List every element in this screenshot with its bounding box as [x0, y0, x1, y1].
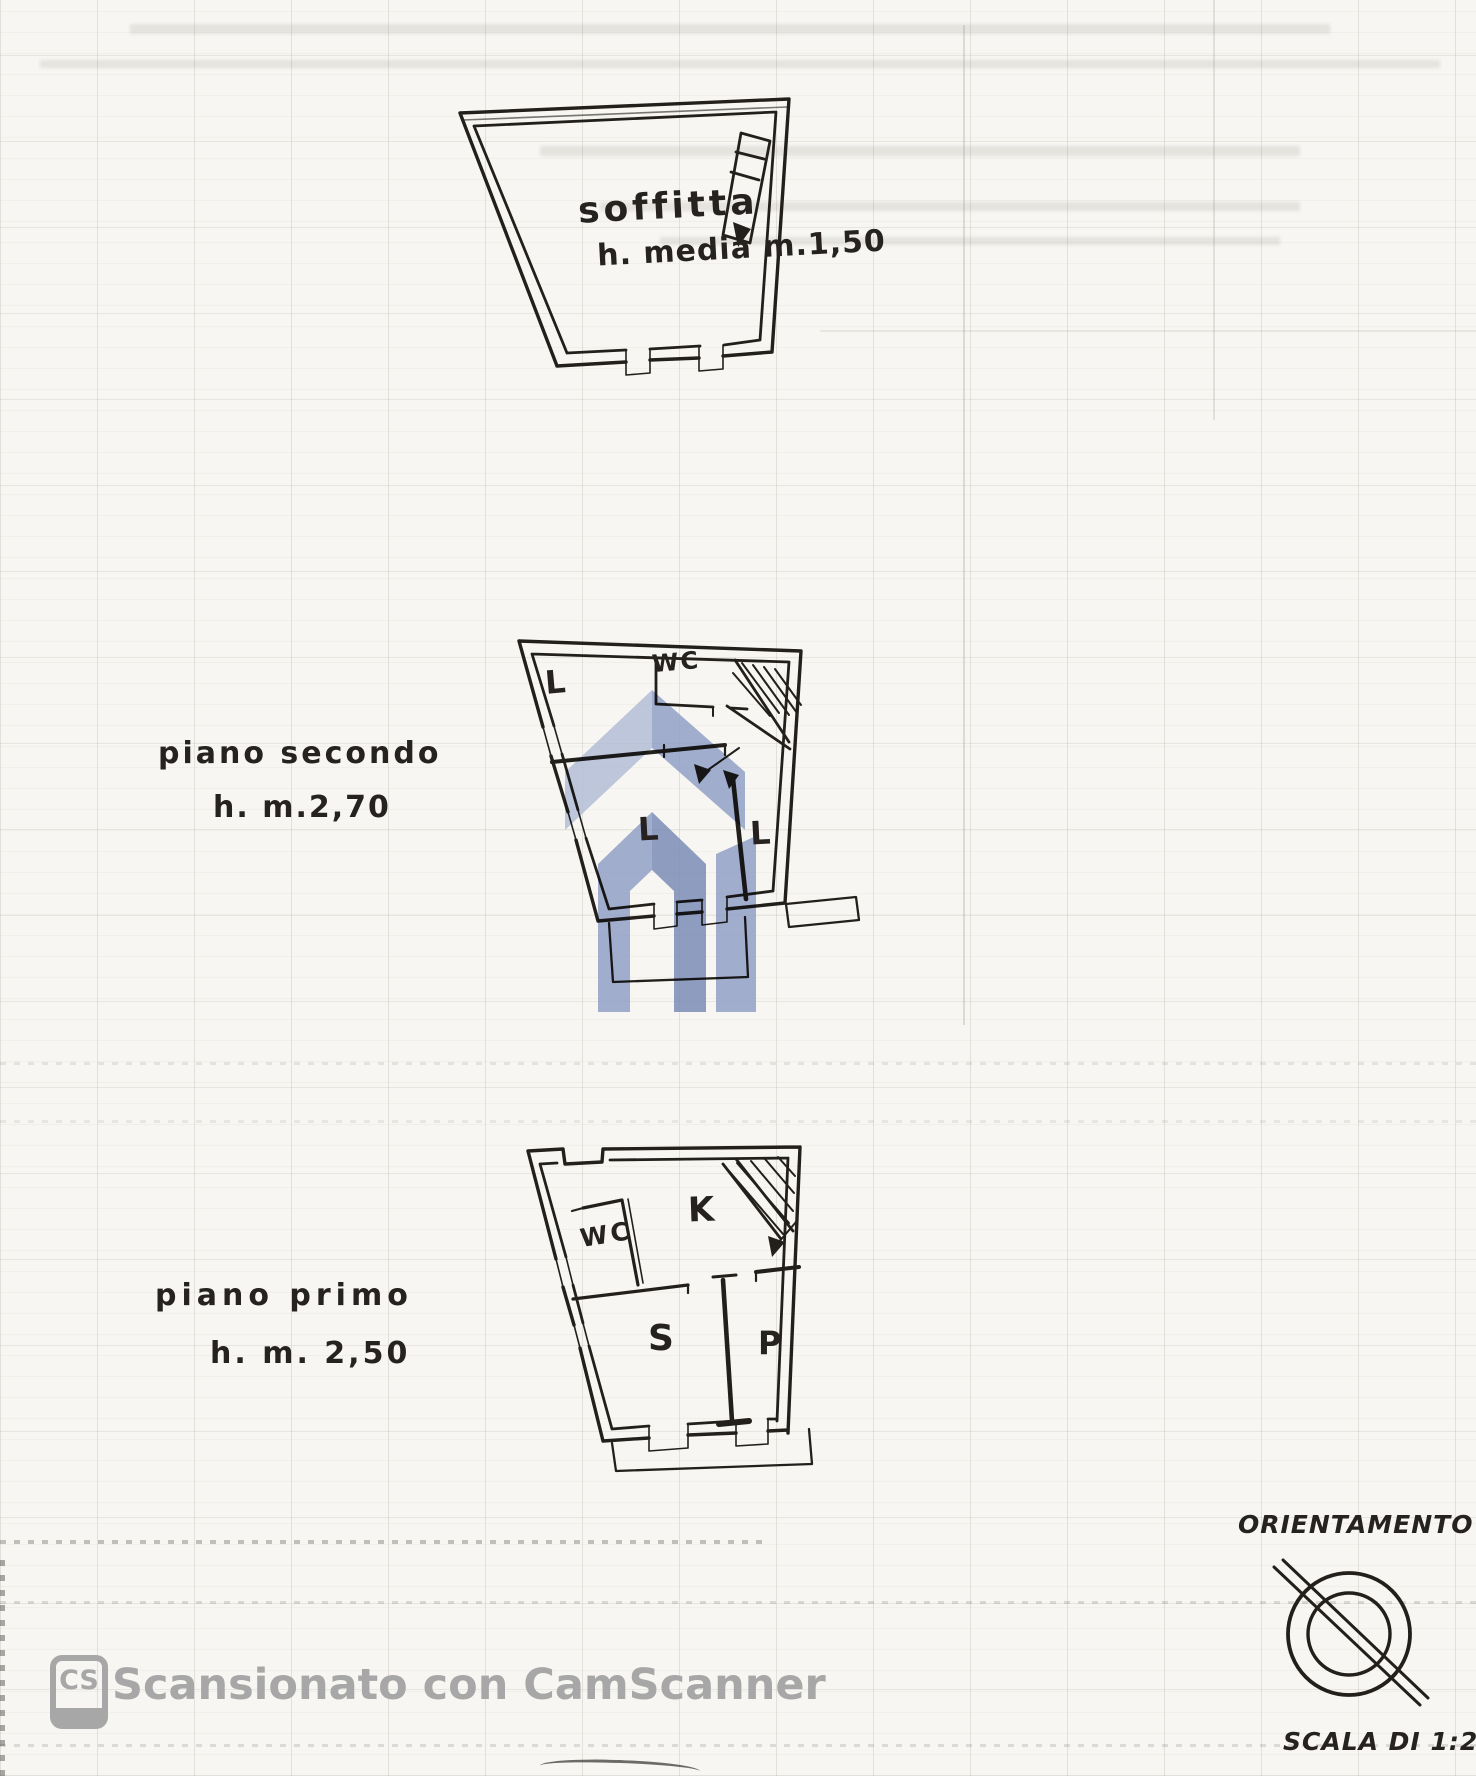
- primo-room-label-k: K: [687, 1190, 715, 1231]
- logo-roof-right-face: [652, 690, 745, 830]
- orientation-title: ORIENTAMENTO: [1238, 1510, 1473, 1539]
- piano-primo-caption: piano primo: [155, 1278, 413, 1313]
- camscanner-watermark-text: Scansionato con CamScanner: [112, 1660, 826, 1710]
- orientation-compass-icon: [1274, 1560, 1428, 1705]
- piano-secondo-caption: piano secondo: [158, 736, 441, 771]
- scanned-floor-plan-page: soffitta h. media m.1,50 piano secondo h…: [0, 0, 1476, 1776]
- primo-center-wall: [723, 1280, 732, 1421]
- logo-right-ribbon: [716, 836, 756, 1012]
- primo-right-interior-wall: [756, 1267, 799, 1272]
- secondo-room-label-l-left: L: [637, 809, 659, 848]
- camscanner-logo-watermark: [565, 690, 756, 1012]
- primo-center-wall-cap: [713, 1275, 736, 1277]
- primo-windows: [556, 1257, 589, 1348]
- compass-needle-lines: [1274, 1560, 1428, 1705]
- camscanner-badge-letters: CS: [59, 1665, 99, 1696]
- primo-center-wall-foot: [719, 1421, 749, 1424]
- piano-secondo-height-caption: h. m.2,70: [213, 790, 391, 825]
- camscanner-badge-foot: [56, 1708, 102, 1723]
- secondo-room-label-l-top: L: [543, 662, 567, 702]
- scale-label: SCALA DI 1:200: [1283, 1727, 1476, 1756]
- secondo-room-label-l-right: L: [749, 813, 771, 852]
- secondo-right-extension: [786, 897, 859, 927]
- primo-walls-outer: [528, 1147, 800, 1441]
- camscanner-badge-icon: CS: [50, 1655, 108, 1729]
- piano-primo-height-caption: h. m. 2,50: [210, 1336, 410, 1371]
- primo-room-label-s: S: [648, 1318, 674, 1359]
- logo-roof-left-face: [565, 690, 652, 830]
- logo-body-right-face: [652, 812, 706, 1012]
- secondo-room-label-wc: WC: [651, 646, 701, 678]
- primo-room-label-p: P: [758, 1324, 781, 1362]
- compass-inner-circle: [1308, 1593, 1390, 1675]
- piano-primo-plan-drawing: [528, 1147, 812, 1471]
